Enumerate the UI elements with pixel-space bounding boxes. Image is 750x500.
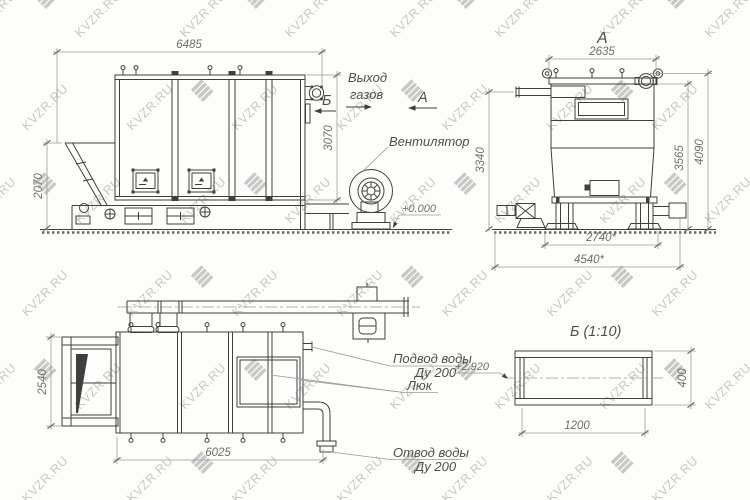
watermark-logo-icon bbox=[245, 0, 265, 8]
watermark-text: KVZR.RU bbox=[124, 81, 176, 133]
watermark-logo-icon bbox=[612, 80, 632, 100]
lifting-eye-icon bbox=[620, 69, 624, 78]
fan-scroll bbox=[350, 170, 393, 230]
dim-plan-length: 6025 bbox=[113, 437, 327, 464]
dim-height-value: 3070 bbox=[323, 125, 335, 151]
watermark-text: KVZR.RU bbox=[177, 360, 229, 412]
watermark-text: KVZR.RU bbox=[492, 360, 544, 412]
watermark-text: KVZR.RU bbox=[702, 174, 750, 226]
dim-view-a-width: 2635 bbox=[545, 46, 660, 76]
watermark-logo-icon bbox=[665, 173, 685, 193]
watermark-logo-icon bbox=[612, 452, 632, 472]
watermark-logo-icon bbox=[665, 0, 685, 8]
boiler-body bbox=[115, 66, 305, 201]
view-b-title: Б (1:10) bbox=[570, 324, 621, 340]
fan-label: Вентилятор bbox=[363, 134, 470, 171]
bolt-pin-icon bbox=[281, 323, 285, 332]
watermark-text: KVZR.RU bbox=[439, 267, 491, 319]
watermark-text: KVZR.RU bbox=[0, 0, 19, 40]
dim-pipe-height-value: 3340 bbox=[475, 147, 487, 173]
dim-base-inner-value: 2740* bbox=[585, 232, 617, 244]
water-outlet-text-1: Отвод воды bbox=[393, 445, 469, 460]
watermark-text: KVZR.RU bbox=[334, 453, 386, 500]
watermark-text: KVZR.RU bbox=[492, 0, 544, 40]
view-a-title: А bbox=[596, 30, 608, 47]
lifting-eye-icon bbox=[134, 66, 138, 75]
watermark-logo-icon bbox=[35, 0, 55, 8]
dim-roof-height-value: 3565 bbox=[674, 145, 686, 171]
dim-view-b-length: 1200 bbox=[518, 408, 649, 437]
watermark-logo-icon bbox=[612, 266, 632, 286]
dim-overall-length: 6485 bbox=[53, 39, 326, 143]
watermark-text: KVZR.RU bbox=[229, 81, 281, 133]
watermark-text: KVZR.RU bbox=[702, 360, 750, 412]
watermark-text: KVZR.RU bbox=[334, 267, 386, 319]
watermark-text: KVZR.RU bbox=[387, 174, 439, 226]
section-b-arrow-icon bbox=[314, 108, 322, 113]
watermark-logo-icon bbox=[192, 80, 212, 100]
bolt-pin-icon bbox=[281, 433, 285, 442]
dim-total-height-value: 4090 bbox=[694, 139, 706, 165]
view-b-section: Б (1:10) +2.920 400 bbox=[453, 324, 696, 437]
watermark-logo-icon bbox=[455, 0, 475, 8]
lifting-eye-icon bbox=[238, 66, 242, 75]
watermark-text: KVZR.RU bbox=[72, 0, 124, 40]
gas-outlet-text-2: газов bbox=[350, 87, 383, 102]
elevation-value: +2.920 bbox=[455, 361, 490, 373]
plan-gas-duct bbox=[118, 297, 420, 333]
watermark-text: KVZR.RU bbox=[0, 360, 19, 412]
watermark-text: KVZR.RU bbox=[19, 81, 71, 133]
lifting-eye-icon bbox=[590, 69, 594, 78]
watermark-text: KVZR.RU bbox=[177, 0, 229, 40]
watermark-text: KVZR.RU bbox=[282, 0, 334, 40]
watermark-text: KVZR.RU bbox=[387, 0, 439, 40]
bolt-pin-icon bbox=[161, 433, 165, 442]
view-a-arrow-icon bbox=[408, 105, 416, 110]
dim-view-b-length-value: 1200 bbox=[564, 420, 590, 432]
dim-width-value: 2635 bbox=[588, 46, 615, 58]
hatch-text: Люк bbox=[406, 378, 433, 393]
bolt-pin-icon bbox=[241, 433, 245, 442]
dim-view-b-height-value: 400 bbox=[677, 368, 689, 388]
drawing-svg: KVZR.RUKVZR.RUKVZR.RUKVZR.RUKVZR.RUKVZR.… bbox=[0, 0, 750, 500]
watermark-text: KVZR.RU bbox=[229, 453, 281, 500]
lifting-eye-icon bbox=[121, 66, 125, 75]
bolt-pin-icon bbox=[129, 433, 133, 442]
watermark-logo-icon bbox=[245, 359, 265, 379]
watermark-text: KVZR.RU bbox=[19, 267, 71, 319]
section-b-marker: Б bbox=[314, 93, 336, 114]
view-a-roof bbox=[542, 69, 662, 89]
dim-base-outer-value: 4540* bbox=[574, 254, 605, 266]
lifting-eye-icon bbox=[554, 69, 558, 78]
dim-view-a-base-outer: 4540* bbox=[491, 218, 684, 271]
watermark-text: KVZR.RU bbox=[649, 81, 701, 133]
water-inlet-stub bbox=[303, 342, 312, 352]
watermark-logo-icon bbox=[402, 266, 422, 286]
watermark-text: KVZR.RU bbox=[544, 267, 596, 319]
gas-outlet-text-1: Выход bbox=[348, 70, 387, 85]
section-b-text: Б bbox=[322, 93, 331, 109]
dim-plan-length-value: 6025 bbox=[205, 447, 231, 459]
watermark-text: KVZR.RU bbox=[0, 174, 19, 226]
bolt-pin-icon bbox=[241, 323, 245, 332]
dim-plan-width-value: 2540 bbox=[37, 369, 49, 396]
view-a-arrow-text: А bbox=[417, 90, 428, 106]
watermark-logo-icon bbox=[245, 173, 265, 193]
water-outlet-label: Отвод воды Ду 200 bbox=[331, 445, 469, 474]
gas-outlet-flange bbox=[305, 86, 324, 123]
watermark-text: KVZR.RU bbox=[229, 267, 281, 319]
fan-label-text: Вентилятор bbox=[389, 134, 470, 149]
watermark-text: KVZR.RU bbox=[702, 0, 750, 40]
watermark-text: KVZR.RU bbox=[439, 81, 491, 133]
ground-line bbox=[40, 230, 452, 233]
lifting-eye-icon bbox=[208, 66, 212, 75]
watermark-text: KVZR.RU bbox=[649, 453, 701, 500]
bolt-pin-icon bbox=[205, 433, 209, 442]
water-outlet-elbow bbox=[303, 402, 336, 452]
dim-hopper-value: 2070 bbox=[33, 173, 45, 200]
water-outlet-text-2: Ду 200 bbox=[413, 459, 457, 474]
watermark-text: KVZR.RU bbox=[124, 453, 176, 500]
bolt-pin-icon bbox=[205, 323, 209, 332]
watermark-text: KVZR.RU bbox=[19, 453, 71, 500]
ground-level-text: +0.000 bbox=[402, 203, 437, 215]
watermark-text: KVZR.RU bbox=[597, 174, 649, 226]
boiler-technical-drawing: KVZR.RUKVZR.RUKVZR.RUKVZR.RUKVZR.RUKVZR.… bbox=[0, 0, 750, 500]
view-b-elevation-mark: +2.920 bbox=[453, 361, 509, 380]
watermark-text: KVZR.RU bbox=[124, 267, 176, 319]
watermark-logo-icon bbox=[192, 266, 212, 286]
furnace-door-icon bbox=[132, 169, 160, 194]
water-inlet-label: Подвод воды Ду 200 bbox=[312, 347, 472, 380]
watermark-text: KVZR.RU bbox=[544, 453, 596, 500]
elevation-arrow-icon bbox=[502, 373, 509, 380]
dim-plan-width: 2540 bbox=[37, 333, 62, 430]
watermark-text: KVZR.RU bbox=[544, 81, 596, 133]
watermark-text: KVZR.RU bbox=[649, 267, 701, 319]
watermark-logo-icon bbox=[455, 173, 475, 193]
view-a-front: А bbox=[475, 30, 716, 271]
view-b-duct-section bbox=[504, 351, 663, 405]
dim-length-value: 6485 bbox=[176, 39, 202, 51]
watermark-text: KVZR.RU bbox=[597, 360, 649, 412]
